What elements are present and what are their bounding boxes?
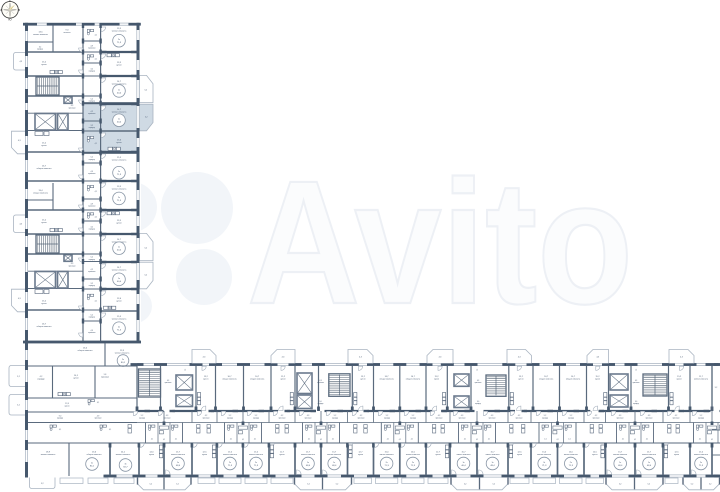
svg-text:кухня: кухня (360, 379, 365, 381)
svg-text:жилая комната: жилая комната (116, 454, 131, 456)
svg-text:2к: 2к (255, 462, 257, 464)
svg-text:Avito: Avito (247, 145, 633, 341)
svg-text:4,3: 4,3 (71, 105, 74, 107)
svg-text:коридор: коридор (698, 417, 704, 419)
svg-text:5,2: 5,2 (145, 117, 148, 119)
svg-text:4,3: 4,3 (307, 415, 310, 417)
svg-text:3,2: 3,2 (91, 125, 94, 127)
svg-text:4,1: 4,1 (411, 439, 413, 441)
svg-text:1к: 1к (307, 462, 309, 464)
svg-text:коридор: коридор (57, 418, 63, 420)
svg-text:прихожая: прихожая (278, 417, 285, 419)
svg-text:2к: 2к (118, 39, 120, 41)
svg-text:5,2: 5,2 (709, 484, 712, 486)
svg-text:жилая комната: жилая комната (694, 379, 709, 381)
svg-text:5,2: 5,2 (176, 484, 179, 486)
svg-text:4,3: 4,3 (203, 357, 206, 359)
svg-text:4,3: 4,3 (648, 415, 651, 417)
svg-text:коридор: коридор (37, 49, 43, 51)
svg-text:прихожая: прихожая (304, 417, 311, 419)
svg-text:общая комната: общая комната (37, 326, 53, 328)
svg-text:5,2: 5,2 (544, 415, 547, 417)
svg-text:кухня: кухня (517, 454, 522, 456)
svg-text:В: В (18, 8, 20, 12)
svg-text:жилая комната: жилая комната (223, 454, 238, 456)
svg-text:коридор: коридор (227, 417, 233, 419)
svg-text:3к: 3к (125, 464, 127, 466)
svg-text:жилая комната: жилая комната (112, 160, 127, 162)
svg-text:5,2: 5,2 (229, 415, 232, 417)
svg-text:прихожая: прихожая (488, 417, 495, 419)
svg-text:кухня: кухня (41, 303, 46, 305)
svg-text:жилая комната: жилая комната (33, 34, 48, 36)
svg-text:общая комната: общая комната (87, 454, 103, 456)
svg-text:жилая комната: жилая комната (694, 454, 709, 456)
svg-text:прихожая: прихожая (88, 206, 95, 208)
svg-text:4,1: 4,1 (95, 143, 97, 145)
svg-text:4,1: 4,1 (59, 429, 61, 431)
svg-text:прихожая: прихожая (101, 377, 109, 379)
svg-text:4,1: 4,1 (488, 439, 490, 441)
svg-text:коридор: коридор (568, 417, 574, 419)
svg-text:коридор: коридор (37, 379, 44, 381)
svg-text:прихожая: прихожая (163, 417, 170, 419)
svg-text:4,2: 4,2 (40, 376, 43, 378)
svg-text:2к: 2к (229, 462, 231, 464)
svg-text:5,2: 5,2 (91, 257, 94, 259)
svg-text:прихожая: прихожая (317, 382, 324, 384)
svg-text:прихожая: прихожая (68, 107, 75, 109)
svg-text:прихожая: прихожая (68, 265, 75, 267)
svg-text:2к: 2к (91, 463, 93, 465)
svg-text:кухня: кухня (518, 379, 523, 381)
svg-text:кухня: кухня (116, 301, 121, 303)
svg-text:2к: 2к (700, 462, 702, 464)
svg-text:5,2: 5,2 (307, 484, 310, 486)
svg-text:5,2: 5,2 (386, 415, 389, 417)
svg-text:общая комната: общая комната (78, 350, 94, 352)
svg-text:коридор: коридор (89, 317, 95, 319)
svg-text:1к: 1к (118, 89, 120, 91)
svg-text:жилая комната: жилая комната (327, 454, 342, 456)
svg-text:12,4: 12,4 (65, 403, 69, 405)
svg-text:5,2: 5,2 (91, 157, 94, 159)
svg-text:Ю: Ю (8, 18, 11, 22)
svg-text:коридор: коридор (89, 285, 95, 287)
svg-text:кухня: кухня (41, 64, 46, 66)
svg-text:2к: 2к (118, 327, 120, 329)
svg-text:кухня: кухня (116, 142, 121, 144)
svg-text:9,0: 9,0 (319, 401, 321, 403)
svg-text:прихожая: прихожая (475, 382, 482, 384)
svg-text:прихожая: прихожая (357, 417, 364, 419)
svg-text:4,2: 4,2 (675, 415, 678, 417)
svg-text:коридор: коридор (89, 71, 95, 73)
svg-text:прихожая: прихожая (435, 417, 442, 419)
svg-text:5,2: 5,2 (144, 90, 147, 92)
svg-text:4,1: 4,1 (95, 35, 97, 37)
svg-text:коридор: коридор (89, 259, 95, 261)
svg-text:1к: 1к (177, 462, 179, 464)
svg-text:жилая комната: жилая комната (457, 454, 472, 456)
svg-text:4,1: 4,1 (151, 439, 153, 441)
svg-text:прихожая: прихожая (458, 417, 465, 419)
svg-text:4,3: 4,3 (19, 61, 22, 63)
svg-text:4,2: 4,2 (518, 415, 521, 417)
svg-text:общая комната: общая комната (539, 379, 554, 381)
svg-text:прихожая: прихожая (165, 382, 172, 384)
svg-text:1к: 1к (118, 278, 120, 280)
svg-text:4,1: 4,1 (308, 439, 310, 441)
svg-text:4,2: 4,2 (595, 415, 598, 417)
svg-text:5,2: 5,2 (691, 484, 694, 486)
svg-text:4,2: 4,2 (399, 439, 401, 441)
svg-text:жилая комната: жилая комната (112, 189, 127, 191)
svg-text:прихожая: прихожая (88, 113, 95, 115)
svg-text:4,1: 4,1 (332, 439, 334, 441)
svg-text:4,2: 4,2 (711, 439, 713, 441)
svg-text:4,1: 4,1 (646, 439, 648, 441)
svg-text:общая комната: общая комната (37, 168, 53, 170)
svg-text:4,1: 4,1 (109, 429, 111, 431)
svg-text:прихожая: прихожая (88, 173, 95, 175)
svg-text:прихожая: прихожая (202, 417, 209, 419)
svg-text:3,2: 3,2 (39, 47, 41, 49)
svg-text:кухня: кухня (202, 454, 207, 456)
svg-text:жилая комната: жилая комната (301, 454, 316, 456)
svg-text:жилая комната: жилая комната (249, 454, 264, 456)
svg-text:общая комната: общая комната (566, 379, 581, 381)
svg-text:4,2: 4,2 (242, 439, 244, 441)
svg-text:2к: 2к (570, 462, 572, 464)
svg-text:1к: 1к (648, 462, 650, 464)
svg-text:коридор: коридор (253, 417, 259, 419)
svg-text:4,2: 4,2 (320, 439, 322, 441)
svg-text:1к: 1к (118, 247, 120, 249)
svg-text:4,3: 4,3 (18, 298, 21, 300)
svg-text:жилая комната: жилая комната (41, 454, 56, 456)
svg-text:кухня: кухня (41, 145, 46, 147)
svg-text:4,1: 4,1 (464, 439, 466, 441)
svg-text:4,3: 4,3 (282, 357, 285, 359)
svg-text:коридор: коридор (89, 127, 95, 129)
svg-text:3,2: 3,2 (91, 283, 94, 285)
svg-text:прихожая: прихожая (88, 271, 95, 273)
svg-text:прихожая: прихожая (592, 417, 599, 419)
svg-text:4,1: 4,1 (568, 439, 570, 441)
svg-text:коридор: коридор (89, 101, 95, 103)
svg-text:жилая комната: жилая комната (112, 112, 127, 114)
svg-text:5,2: 5,2 (144, 248, 147, 250)
svg-text:кухня: кухня (592, 454, 597, 456)
svg-text:2к: 2к (543, 462, 545, 464)
svg-text:9,0: 9,0 (477, 401, 479, 403)
svg-text:5,2: 5,2 (464, 484, 467, 486)
svg-text:5,8: 5,8 (104, 374, 107, 376)
svg-text:4,1: 4,1 (175, 439, 177, 441)
svg-text:5,2: 5,2 (334, 415, 337, 417)
svg-text:4,2: 4,2 (438, 415, 441, 417)
svg-text:4,3: 4,3 (461, 415, 464, 417)
svg-text:5,2: 5,2 (150, 484, 153, 486)
svg-text:коридор: коридор (475, 403, 481, 405)
svg-text:коридор: коридор (332, 417, 338, 419)
svg-text:прихожая: прихожая (94, 418, 101, 420)
svg-text:кухня: кухня (435, 454, 440, 456)
svg-text:кухня: кухня (116, 65, 121, 67)
svg-text:5,2: 5,2 (91, 314, 94, 316)
svg-text:жилая комната: жилая комната (613, 454, 628, 456)
svg-text:4,3: 4,3 (518, 357, 521, 359)
svg-text:общая комната: общая комната (406, 379, 421, 381)
svg-text:4,1: 4,1 (95, 217, 97, 219)
svg-text:4,3: 4,3 (619, 415, 622, 417)
svg-text:3,2: 3,2 (91, 68, 94, 70)
svg-text:4,9: 4,9 (91, 45, 94, 47)
svg-text:кухня: кухня (434, 379, 439, 381)
svg-text:5,2: 5,2 (412, 415, 415, 417)
svg-text:4,1: 4,1 (622, 439, 624, 441)
svg-text:4,9: 4,9 (91, 330, 94, 332)
svg-text:прихожая: прихожая (672, 417, 679, 419)
svg-text:кухня: кухня (674, 454, 679, 456)
svg-text:общая комната: общая комната (222, 379, 237, 381)
svg-text:кухня: кухня (116, 223, 121, 225)
svg-text:4,2: 4,2 (476, 439, 478, 441)
svg-text:кухня: кухня (358, 454, 363, 456)
svg-text:4,3: 4,3 (491, 415, 494, 417)
svg-text:общая комната: общая комната (379, 379, 394, 381)
svg-text:9,2: 9,2 (715, 387, 718, 389)
svg-text:коридор: коридор (89, 229, 95, 231)
svg-text:1к: 1к (619, 462, 621, 464)
svg-text:4,3: 4,3 (167, 380, 169, 382)
svg-text:4,2: 4,2 (91, 269, 94, 271)
svg-text:прихожая: прихожая (88, 48, 95, 50)
svg-text:4,2: 4,2 (556, 439, 558, 441)
svg-text:4,1: 4,1 (230, 439, 232, 441)
svg-text:4,9: 4,9 (91, 203, 94, 205)
svg-text:1к: 1к (333, 462, 335, 464)
svg-text:5,2: 5,2 (255, 415, 258, 417)
svg-text:4,3: 4,3 (166, 415, 169, 417)
svg-text:5,2: 5,2 (648, 484, 651, 486)
svg-text:жилая комната: жилая комната (537, 454, 552, 456)
svg-text:5,2: 5,2 (41, 483, 44, 485)
svg-text:прихожая: прихожая (633, 382, 640, 384)
svg-text:коридор: коридор (542, 417, 548, 419)
svg-text:2к: 2к (386, 462, 388, 464)
svg-text:4,1: 4,1 (97, 402, 99, 404)
svg-text:4,1: 4,1 (95, 301, 97, 303)
svg-text:4,1: 4,1 (95, 191, 97, 193)
svg-text:коридор: коридор (89, 159, 95, 161)
svg-text:коридор: коридор (384, 417, 390, 419)
svg-text:4,9: 4,9 (97, 416, 100, 418)
svg-text:кухня: кухня (677, 379, 682, 381)
svg-text:кухня: кухня (41, 222, 46, 224)
svg-text:4,3: 4,3 (359, 357, 362, 359)
svg-text:4,2: 4,2 (91, 111, 94, 113)
svg-text:коридор: коридор (139, 417, 145, 419)
svg-text:кухня: кухня (595, 379, 600, 381)
svg-text:коридор: коридор (318, 403, 324, 405)
svg-text:коридор: коридор (410, 417, 416, 419)
svg-text:коридор: коридор (633, 403, 639, 405)
svg-text:1к: 1к (492, 462, 494, 464)
svg-text:4,3: 4,3 (635, 380, 637, 382)
svg-text:жилая комната: жилая комната (486, 454, 501, 456)
svg-text:9,0: 9,0 (59, 416, 62, 418)
svg-text:2к: 2к (412, 462, 414, 464)
svg-text:5,2: 5,2 (17, 405, 20, 407)
svg-text:ванная: ванная (64, 32, 71, 34)
svg-text:4,3: 4,3 (439, 357, 442, 359)
svg-text:4,2: 4,2 (360, 415, 363, 417)
svg-text:общая комната: общая комната (250, 379, 265, 381)
svg-text:2к: 2к (122, 359, 124, 361)
svg-text:5,2: 5,2 (493, 484, 496, 486)
svg-text:4,3: 4,3 (19, 224, 22, 226)
svg-text:прихожая: прихожая (645, 417, 652, 419)
svg-text:жилая комната: жилая комната (380, 454, 395, 456)
svg-text:4,1: 4,1 (699, 439, 701, 441)
svg-text:4,3: 4,3 (680, 357, 683, 359)
svg-text:жилая комната: жилая комната (564, 454, 579, 456)
svg-text:4,1: 4,1 (254, 439, 256, 441)
svg-text:жилая комната: жилая комната (171, 454, 186, 456)
svg-text:5,2: 5,2 (336, 484, 339, 486)
svg-text:4,1: 4,1 (544, 439, 546, 441)
svg-text:2к: 2к (118, 197, 120, 199)
svg-text:4,2: 4,2 (205, 415, 208, 417)
svg-text:4,1: 4,1 (387, 439, 389, 441)
svg-text:4,3: 4,3 (596, 357, 599, 359)
svg-text:4,3: 4,3 (71, 263, 74, 265)
svg-text:кухня: кухня (203, 379, 208, 381)
svg-text:прихожая: прихожая (515, 417, 522, 419)
svg-text:5,2: 5,2 (91, 98, 94, 100)
svg-text:кухня: кухня (73, 378, 78, 380)
svg-text:4,3: 4,3 (477, 380, 479, 382)
svg-text:4,1: 4,1 (95, 59, 97, 61)
svg-text:4,2: 4,2 (163, 439, 165, 441)
svg-text:жилая комната: жилая комната (112, 31, 127, 33)
svg-text:5,2: 5,2 (619, 484, 622, 486)
svg-text:4,2: 4,2 (634, 439, 636, 441)
svg-text:кухня: кухня (280, 379, 285, 381)
svg-text:5,2: 5,2 (144, 275, 147, 277)
svg-text:5,2: 5,2 (141, 415, 144, 417)
svg-text:жилая комната: жилая комната (112, 319, 127, 321)
svg-text:5,2: 5,2 (700, 415, 703, 417)
svg-text:4,3: 4,3 (18, 140, 21, 142)
svg-text:3,2: 3,2 (91, 226, 94, 228)
svg-text:прихожая: прихожая (88, 332, 95, 334)
svg-text:прихожая: прихожая (616, 417, 623, 419)
svg-text:общая комната: общая комната (33, 193, 49, 195)
svg-text:4,3: 4,3 (319, 380, 321, 382)
svg-text:жилая комната: жилая комната (642, 454, 657, 456)
svg-text:З: З (0, 8, 2, 12)
svg-text:1к: 1к (463, 462, 465, 464)
svg-text:5,2: 5,2 (17, 376, 20, 378)
svg-text:4,2: 4,2 (281, 415, 284, 417)
svg-text:кухня: кухня (65, 406, 70, 408)
svg-text:кухня: кухня (279, 454, 284, 456)
svg-text:9,0: 9,0 (635, 401, 637, 403)
svg-text:жилая комната: жилая комната (112, 270, 127, 272)
svg-text:1к: 1к (118, 119, 120, 121)
svg-text:кухня: кухня (149, 454, 154, 456)
svg-text:4,9: 4,9 (91, 171, 94, 173)
svg-text:2к: 2к (118, 171, 120, 173)
svg-text:жилая комната: жилая комната (406, 454, 421, 456)
svg-text:5,2: 5,2 (570, 415, 573, 417)
